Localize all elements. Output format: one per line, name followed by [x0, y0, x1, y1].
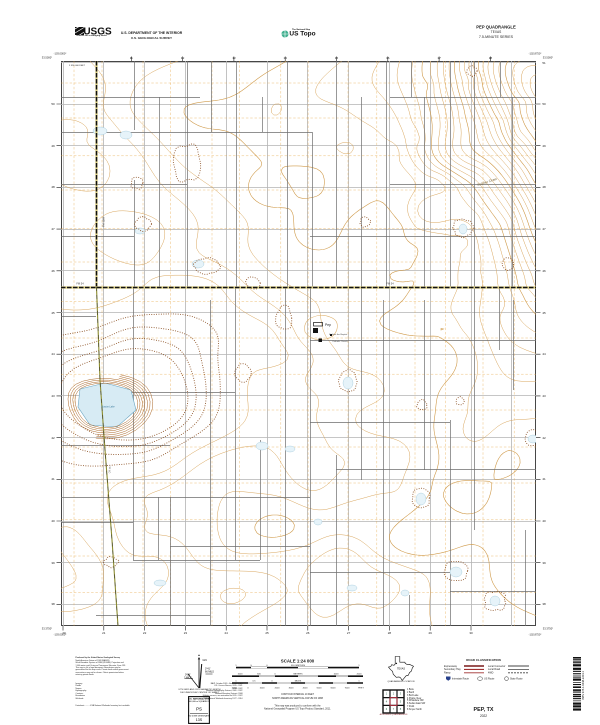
svg-text:ISBN 978-1-9448-2204-1: ISBN 978-1-9448-2204-1: [581, 670, 585, 700]
